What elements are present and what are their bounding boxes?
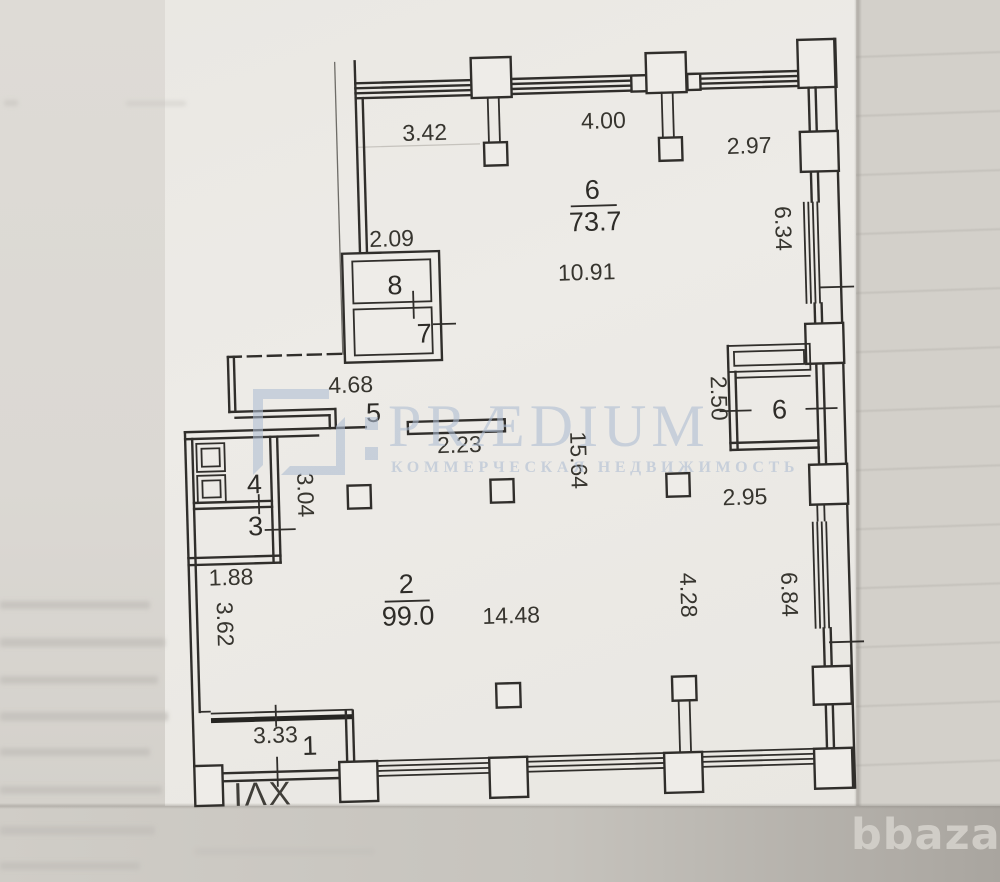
dim-room8-width: 2.09 — [369, 225, 414, 252]
dim-top-left: 3.42 — [402, 119, 447, 146]
corner-column — [797, 39, 836, 88]
adjacent-section-wall — [335, 62, 343, 355]
room-hall-top-area: 73.7 — [569, 206, 622, 237]
interior-column — [496, 683, 521, 708]
right-wall — [795, 39, 868, 789]
dimension-tick — [819, 286, 854, 287]
watermark-brand: PRÆDIUM — [388, 392, 710, 461]
section-label: IΛX — [233, 774, 293, 813]
dim-top-mid: 4.00 — [581, 107, 626, 134]
dim-room1-width: 3.33 — [253, 721, 298, 748]
dim-top-right: 2.97 — [726, 132, 771, 159]
shaft-box — [196, 443, 225, 472]
dim-right-upper: 6.34 — [770, 206, 797, 252]
room8-number: 8 — [387, 270, 403, 300]
dim-left-shaft: 1.88 — [208, 563, 253, 590]
photo-host-watermark: bbaza — [851, 810, 1000, 860]
interior-column — [659, 137, 683, 161]
room-hall-main-area: 99.0 — [381, 600, 434, 631]
wall-column — [339, 761, 378, 802]
room-hall-top-number: 6 — [584, 175, 600, 205]
wall-column — [813, 666, 852, 705]
interior-column — [490, 479, 514, 503]
watermark-tagline: КОММЕРЧЕСКАЯ НЕДВИЖИМОСТЬ — [391, 459, 799, 477]
wall-column — [809, 464, 848, 505]
scanned-floor-plan-photo: 3.42 4.00 2.97 6 73.7 10.91 2.09 8 7 6.3… — [0, 0, 1000, 882]
dim-right-mid: 2.95 — [722, 483, 767, 510]
interior-column — [672, 676, 697, 701]
wall-column — [800, 131, 839, 172]
door-tick — [265, 529, 296, 530]
wall-column — [194, 765, 223, 806]
dim-col-bay: 4.28 — [675, 572, 702, 617]
room1-number: 1 — [302, 731, 318, 761]
dim-hall-top-width: 10.91 — [557, 258, 615, 286]
room3-number: 3 — [248, 511, 264, 541]
window-mullion — [687, 74, 700, 90]
room-hall-main-number: 2 — [398, 569, 414, 599]
shaft-box-inner — [202, 480, 220, 497]
wall-column — [646, 52, 687, 93]
wall-column — [664, 752, 703, 793]
corner-column — [814, 748, 853, 789]
vent-duct — [728, 344, 811, 372]
vent-duct-inner — [734, 350, 804, 366]
dim-right-lower: 6.84 — [776, 572, 803, 618]
rooms-8-7-walls — [342, 251, 457, 363]
dimension-tick — [829, 641, 864, 642]
room6-side-number: 6 — [772, 394, 788, 424]
logo-colon-dot — [365, 417, 378, 430]
dimension-tick — [806, 408, 838, 409]
wall-column — [805, 323, 844, 364]
room7-number: 7 — [416, 318, 432, 348]
praedium-logo-icon — [253, 389, 387, 481]
dashed-partition — [228, 354, 345, 357]
logo-bracket-inner — [281, 417, 345, 475]
shaft-box — [197, 475, 226, 503]
wall-column — [489, 757, 528, 798]
door-tick — [413, 291, 414, 319]
shaft-box-inner — [201, 448, 219, 466]
interior-column — [347, 485, 371, 509]
dim-left-lower: 3.62 — [212, 601, 239, 646]
wall-column — [471, 57, 512, 98]
door-tick — [433, 324, 456, 325]
dim-hall-main-width: 14.48 — [482, 601, 540, 629]
logo-colon-dot — [365, 447, 378, 460]
interior-column — [484, 142, 508, 166]
